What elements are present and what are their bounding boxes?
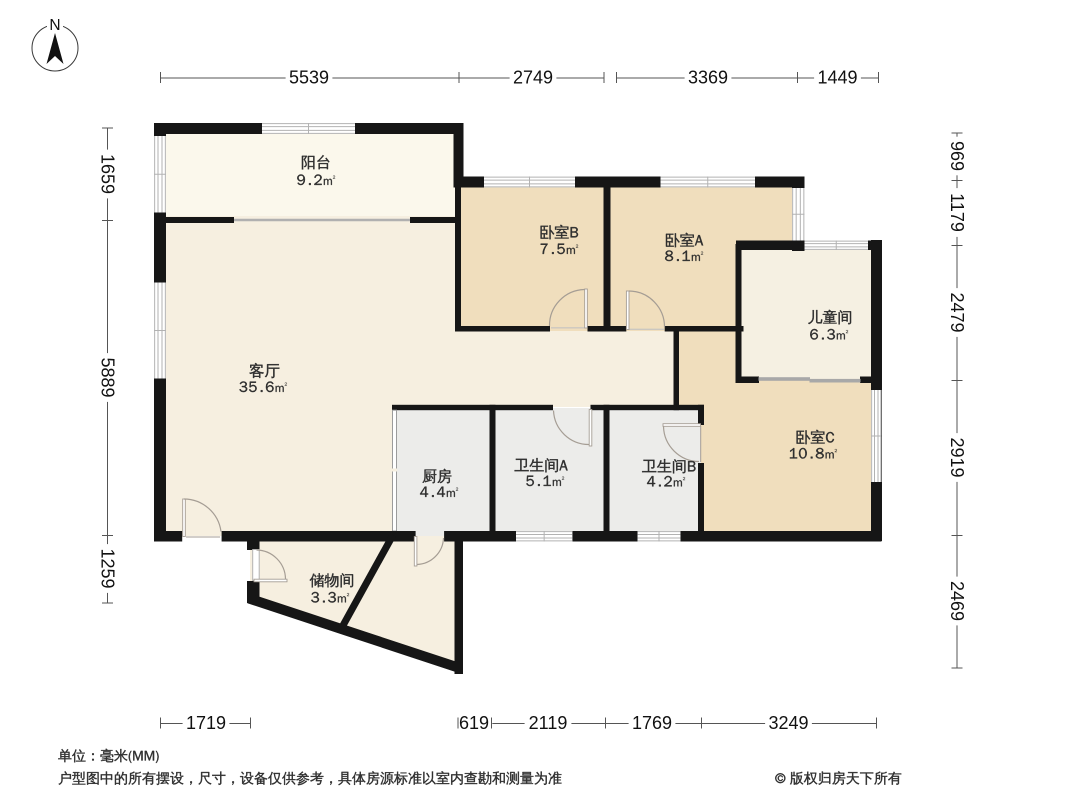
svg-text:1769: 1769 — [632, 713, 672, 733]
svg-text:2919: 2919 — [947, 437, 967, 477]
svg-text:1449: 1449 — [817, 68, 857, 88]
svg-text:1659: 1659 — [98, 154, 118, 194]
svg-text:3249: 3249 — [768, 713, 808, 733]
svg-text:1719: 1719 — [186, 713, 226, 733]
svg-text:2119: 2119 — [529, 713, 568, 733]
svg-text:2749: 2749 — [513, 68, 553, 88]
svg-text:1179: 1179 — [947, 193, 967, 232]
svg-text:2479: 2479 — [947, 292, 967, 332]
svg-text:2469: 2469 — [947, 581, 967, 621]
svg-text:619: 619 — [459, 713, 489, 733]
svg-text:N: N — [49, 17, 60, 34]
svg-text:5889: 5889 — [98, 357, 118, 397]
svg-text:5539: 5539 — [289, 68, 329, 88]
svg-text:969: 969 — [947, 141, 967, 171]
svg-text:3369: 3369 — [688, 68, 728, 88]
svg-text:1259: 1259 — [98, 548, 118, 588]
